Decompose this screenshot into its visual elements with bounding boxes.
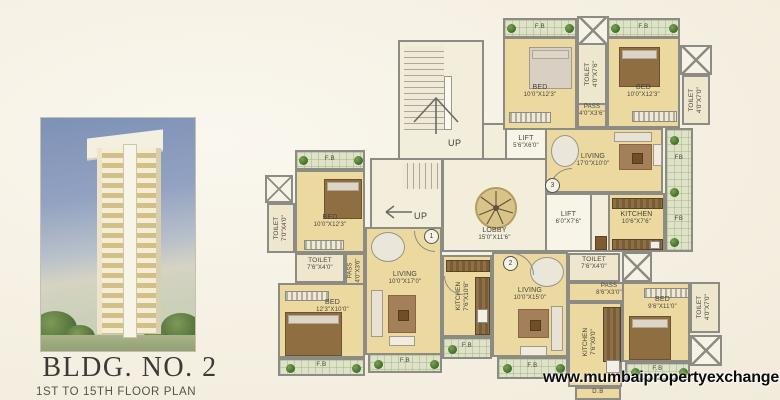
room-label: BED9'6"X11'0" [635,296,690,312]
fb-label: F.B [295,156,365,162]
tv-unit [389,336,415,346]
duct-shaft [622,252,652,282]
kitchen-counter [603,307,621,362]
room-label: LIVING17'0"X10'0" [553,153,633,169]
stair-treads [402,163,440,189]
center-table [398,310,409,321]
floor-plan: UP LIFT5'6"X6'0" UP [0,0,780,400]
room-label: LIVING10'0"X15'0" [494,287,566,303]
lift-top-label: LIFT5'6"X6'0" [505,135,547,151]
room-unit1-bed-bottom [278,283,365,358]
wardrobe [304,240,344,250]
duct-shaft [577,16,609,45]
fb-label: FB [665,216,693,222]
room-label: TOILET7'6"X4'0" [295,257,345,272]
dining-table [530,257,564,287]
watermark: www.mumbaipropertyexchange.com [543,369,780,387]
room-label: KITCHEN10'6"X7'6" [608,211,665,227]
room-label: KITCHEN7'6"X9'0" [582,317,598,367]
room-label: TOILET4'0"X7'6" [584,49,600,99]
fb-label: F.B [607,24,680,30]
room-unit3-bed-right [607,37,680,128]
fb-label: F.B [503,24,577,30]
plant-icon [670,136,679,145]
flat-number-3: 3 [545,178,560,193]
wardrobe [632,111,677,122]
bed-furniture [324,179,362,219]
room-label: TOILET4'0"X7'0" [696,282,712,332]
bed-furniture [619,47,660,87]
sofa [551,306,563,351]
bed-furniture [285,312,342,356]
flat-number-1: 1 [424,229,439,244]
sofa [614,132,652,142]
dining-table [371,232,405,262]
room-label: BED10'0"X12'3" [607,84,680,100]
pillow [288,315,339,324]
room-label: PASS4'0"X3'6" [572,104,612,118]
center-table [530,320,541,331]
bed-furniture [529,47,572,89]
stair-up-arrow-icon [380,204,414,220]
room-unit2-bed [622,282,690,362]
stair-up-arrow-icon [408,90,468,136]
duct-shaft [690,335,722,366]
pillow [622,50,657,59]
passage-right [590,193,610,252]
duct-shaft [680,45,712,75]
room-label: TOILET7'0"X4'0" [273,203,289,253]
flower-bed [665,128,693,252]
room-label: BED12'3"X10'0" [300,299,365,315]
staircase-upper [398,40,484,163]
plant-icon [670,188,679,197]
fb-label: F.B [278,362,365,368]
fb-label: F.B [368,358,442,364]
room-label: BED10'0"X12'3" [295,214,365,230]
center-table [632,153,643,164]
db-label: D.B [575,389,621,395]
utility-cabinet [595,236,607,250]
lobby-label: LOBBY15'0"X11'6" [442,227,547,243]
side-table [653,144,662,166]
pillow [327,182,359,191]
kitchen-counter [612,198,663,209]
tv-unit [520,346,547,356]
pillow [632,319,668,328]
brochure-page: BLDG. NO. 2 1ST TO 15TH FLOOR PLAN UP LI… [0,0,780,400]
pillow [532,50,569,59]
room-unit1-bed-mid [295,170,365,253]
up-label-lower: UP [414,211,428,221]
room-label: TOILET7'6"X4'0" [568,256,620,271]
fb-label: F.B [442,343,492,349]
kitchen-sink [477,309,488,323]
bed-furniture [629,316,671,360]
carpet [518,309,549,338]
room-label: LIVING10'0"X17'0" [368,271,442,287]
lobby-compass-icon [475,187,517,229]
duct-shaft [265,175,293,203]
sofa [371,290,383,337]
room-label: TOILET4'0"X7'0" [688,75,704,125]
fb-label: FB [665,155,693,161]
wardrobe [509,112,551,123]
lift-right-label: LIFT6'0"X7'6" [545,211,592,227]
room-label: BED10'0"X12'3" [503,84,577,100]
plant-icon [670,238,679,247]
up-label-upper: UP [448,138,462,148]
kitchen-sink [650,241,660,249]
carpet [388,295,416,333]
kitchen-counter [475,277,490,335]
flat-number-2: 2 [503,256,518,271]
